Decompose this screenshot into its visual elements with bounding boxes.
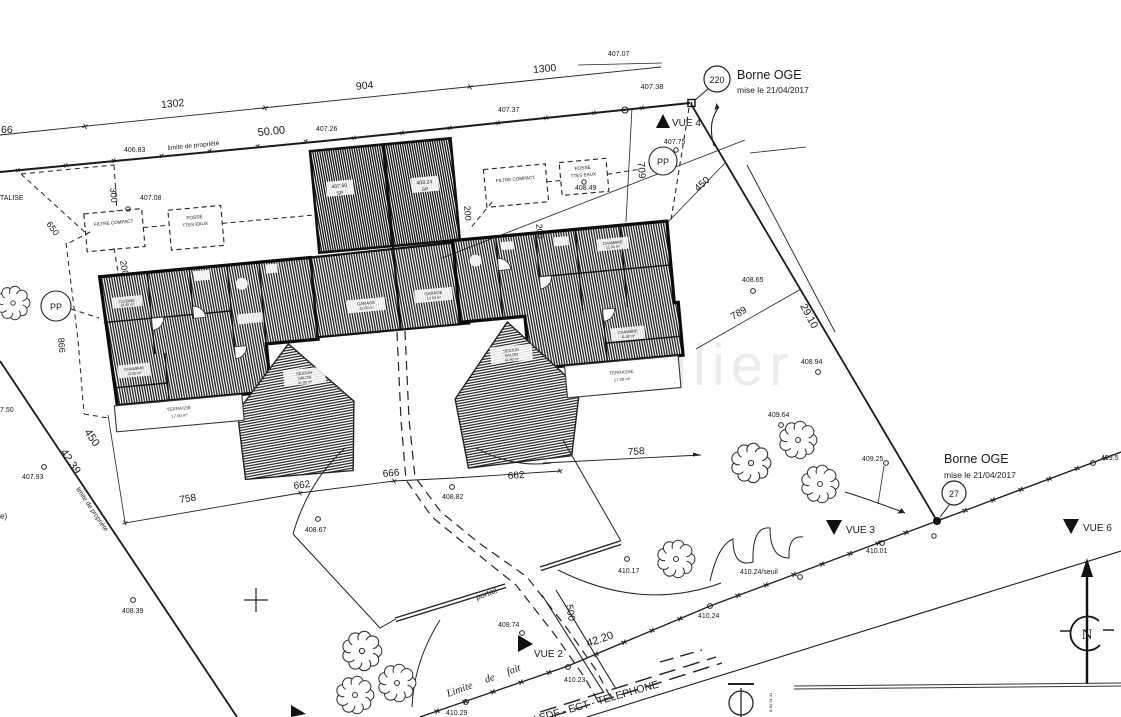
svg-text:408.82: 408.82 xyxy=(442,494,464,501)
svg-text:VUE 4: VUE 4 xyxy=(672,118,701,129)
svg-text:406.83: 406.83 xyxy=(124,147,146,154)
svg-text:410.01: 410.01 xyxy=(866,548,888,555)
svg-text:408.39: 408.39 xyxy=(122,608,144,615)
svg-text:Borne OGE: Borne OGE xyxy=(944,452,1009,466)
svg-text:409.74: 409.74 xyxy=(498,622,520,629)
svg-text:7.50: 7.50 xyxy=(0,407,14,414)
svg-text:408.49: 408.49 xyxy=(575,185,597,192)
svg-text:407.93: 407.93 xyxy=(22,474,44,481)
svg-text:409.25: 409.25 xyxy=(862,456,884,463)
svg-text:1300: 1300 xyxy=(533,62,558,76)
svg-text:662: 662 xyxy=(293,479,311,492)
svg-text:408.67: 408.67 xyxy=(305,527,327,534)
svg-text:866: 866 xyxy=(56,337,67,353)
svg-text:300: 300 xyxy=(108,187,119,203)
svg-text:407.07: 407.07 xyxy=(608,51,630,58)
svg-text:27: 27 xyxy=(949,489,959,499)
svg-text:PP: PP xyxy=(657,157,669,167)
svg-text:SP: SP xyxy=(336,190,344,197)
svg-text:PP: PP xyxy=(50,302,62,312)
svg-text:410.24: 410.24 xyxy=(698,613,720,620)
svg-text:SP: SP xyxy=(421,187,429,194)
svg-text:407.75: 407.75 xyxy=(664,139,686,146)
svg-text:200: 200 xyxy=(462,205,473,221)
svg-text:758: 758 xyxy=(628,446,646,458)
svg-text:N: N xyxy=(1082,627,1093,643)
svg-text:B 80 91 41: B 80 91 41 xyxy=(768,692,773,712)
svg-text:410.24/seuil: 410.24/seuil xyxy=(740,569,778,576)
svg-text:408.94: 408.94 xyxy=(801,359,823,366)
svg-text:410.23: 410.23 xyxy=(564,677,586,684)
svg-text:407.08: 407.08 xyxy=(140,195,162,202)
svg-text:709: 709 xyxy=(635,162,647,180)
svg-text:407.38: 407.38 xyxy=(641,82,664,91)
svg-text:904: 904 xyxy=(355,79,374,93)
svg-text:666: 666 xyxy=(382,468,400,480)
svg-text:TALISE: TALISE xyxy=(0,195,24,202)
svg-text:mise le 21/04/2017: mise le 21/04/2017 xyxy=(737,85,809,95)
svg-text:Borne OGE: Borne OGE xyxy=(737,68,802,82)
svg-text:220: 220 xyxy=(709,75,724,85)
svg-text:410.29: 410.29 xyxy=(446,710,468,717)
svg-text:VUE 2: VUE 2 xyxy=(534,649,563,660)
svg-text:410.17: 410.17 xyxy=(618,568,640,575)
svg-text:407.26: 407.26 xyxy=(316,126,338,133)
svg-text:408.65: 408.65 xyxy=(742,277,764,284)
svg-text:66: 66 xyxy=(1,124,13,136)
svg-text:409.64: 409.64 xyxy=(768,412,790,419)
svg-text:e): e) xyxy=(0,512,7,521)
svg-text:mise le 21/04/2017: mise le 21/04/2017 xyxy=(944,470,1016,480)
svg-text:662: 662 xyxy=(507,470,525,482)
svg-text:200: 200 xyxy=(534,223,545,239)
svg-text:1302: 1302 xyxy=(161,97,186,111)
svg-text:VUE 3: VUE 3 xyxy=(846,525,875,536)
svg-text:407.37: 407.37 xyxy=(498,107,520,114)
svg-text:VUE 6: VUE 6 xyxy=(1083,523,1112,534)
